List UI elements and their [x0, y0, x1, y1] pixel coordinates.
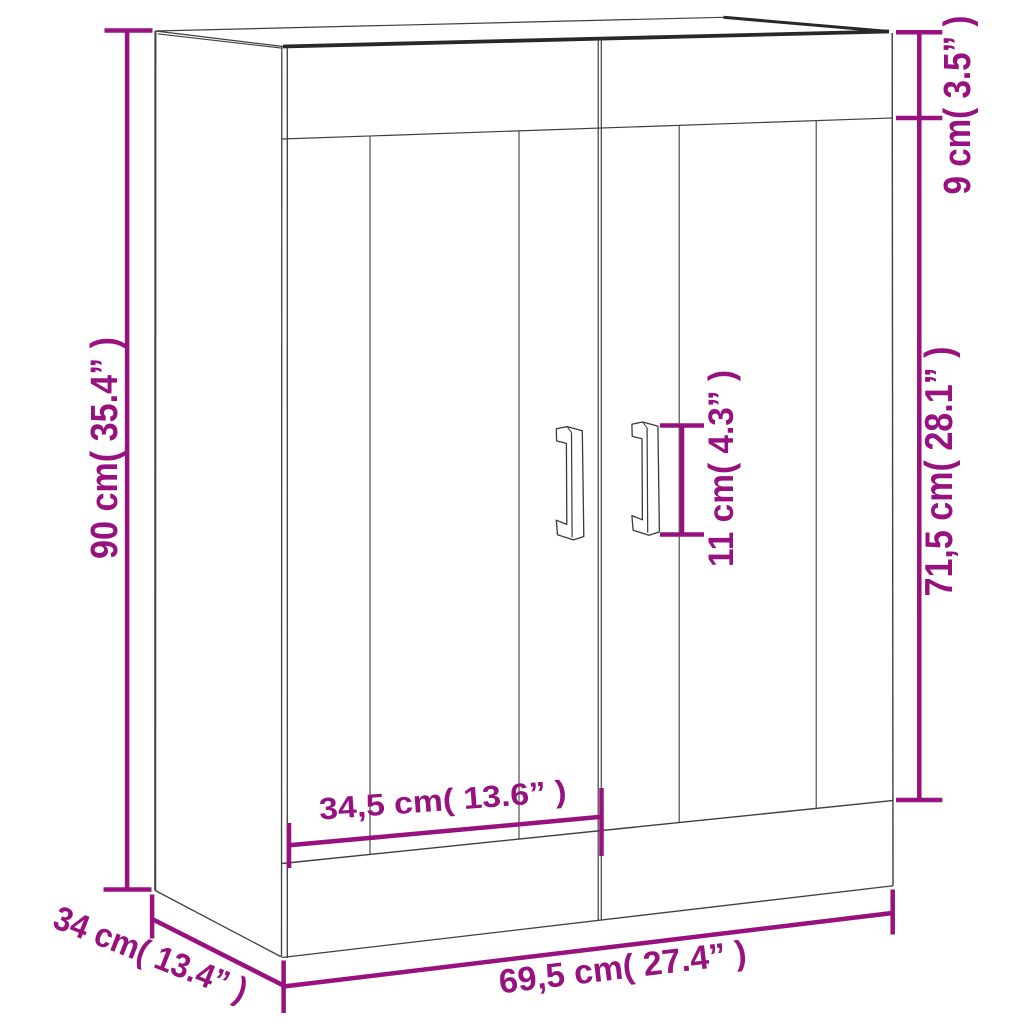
svg-text:90 cm( 35.4” ): 90 cm( 35.4” ) — [84, 337, 126, 559]
svg-text:9 cm( 3.5” ): 9 cm( 3.5” ) — [937, 16, 979, 195]
svg-text:11 cm( 4.3” ): 11 cm( 4.3” ) — [702, 370, 741, 567]
svg-text:71,5 cm( 28.1” ): 71,5 cm( 28.1” ) — [918, 347, 961, 597]
